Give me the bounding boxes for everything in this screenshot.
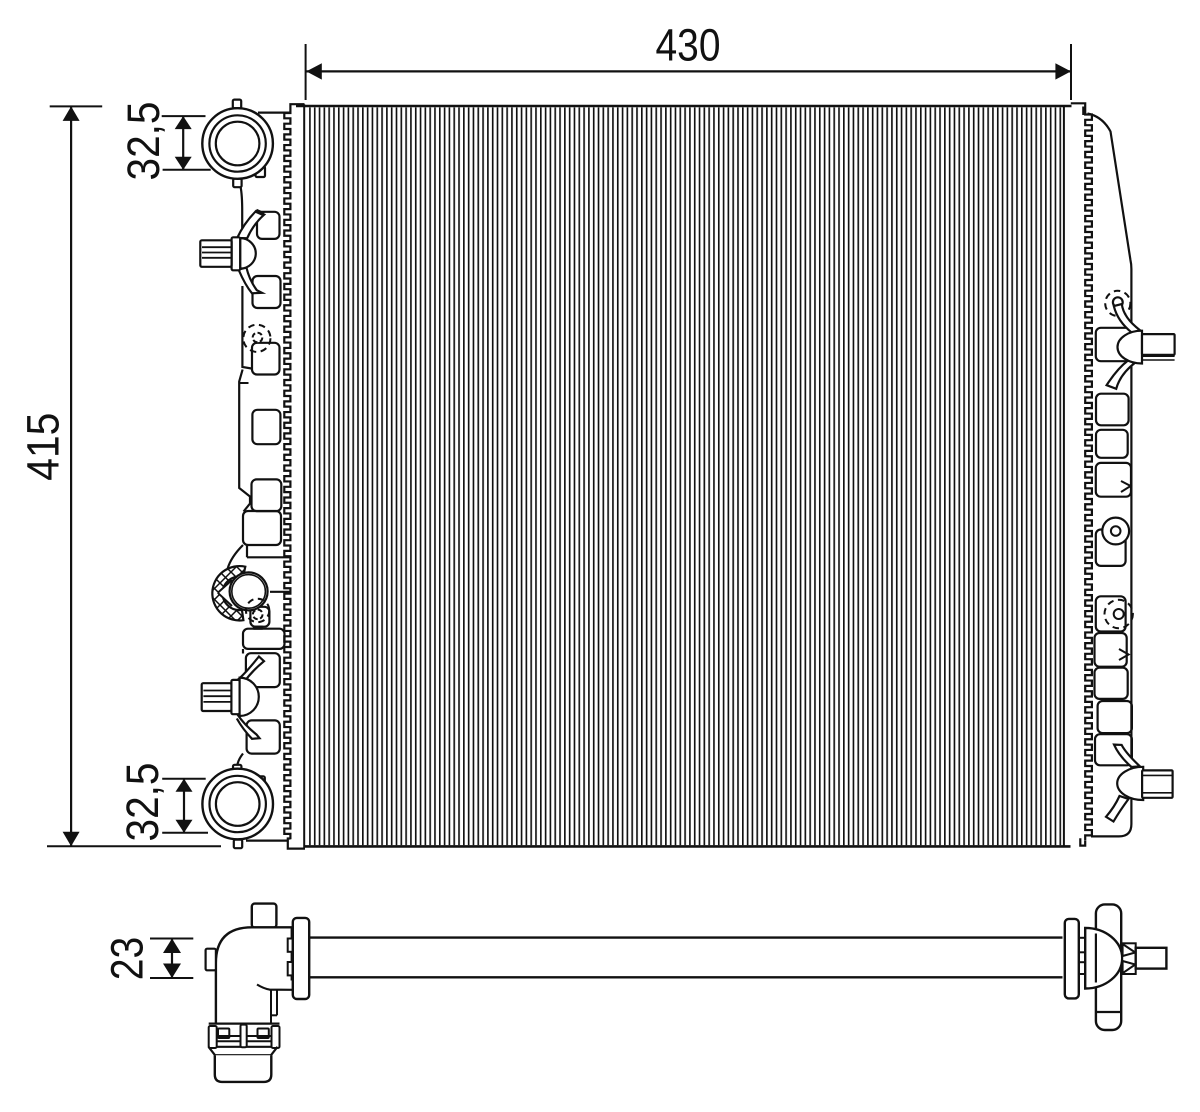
svg-text:32,5: 32,5	[117, 763, 168, 842]
svg-text:32,5: 32,5	[118, 102, 169, 181]
svg-text:415: 415	[18, 413, 69, 481]
svg-text:23: 23	[102, 937, 153, 981]
svg-text:430: 430	[656, 20, 721, 71]
